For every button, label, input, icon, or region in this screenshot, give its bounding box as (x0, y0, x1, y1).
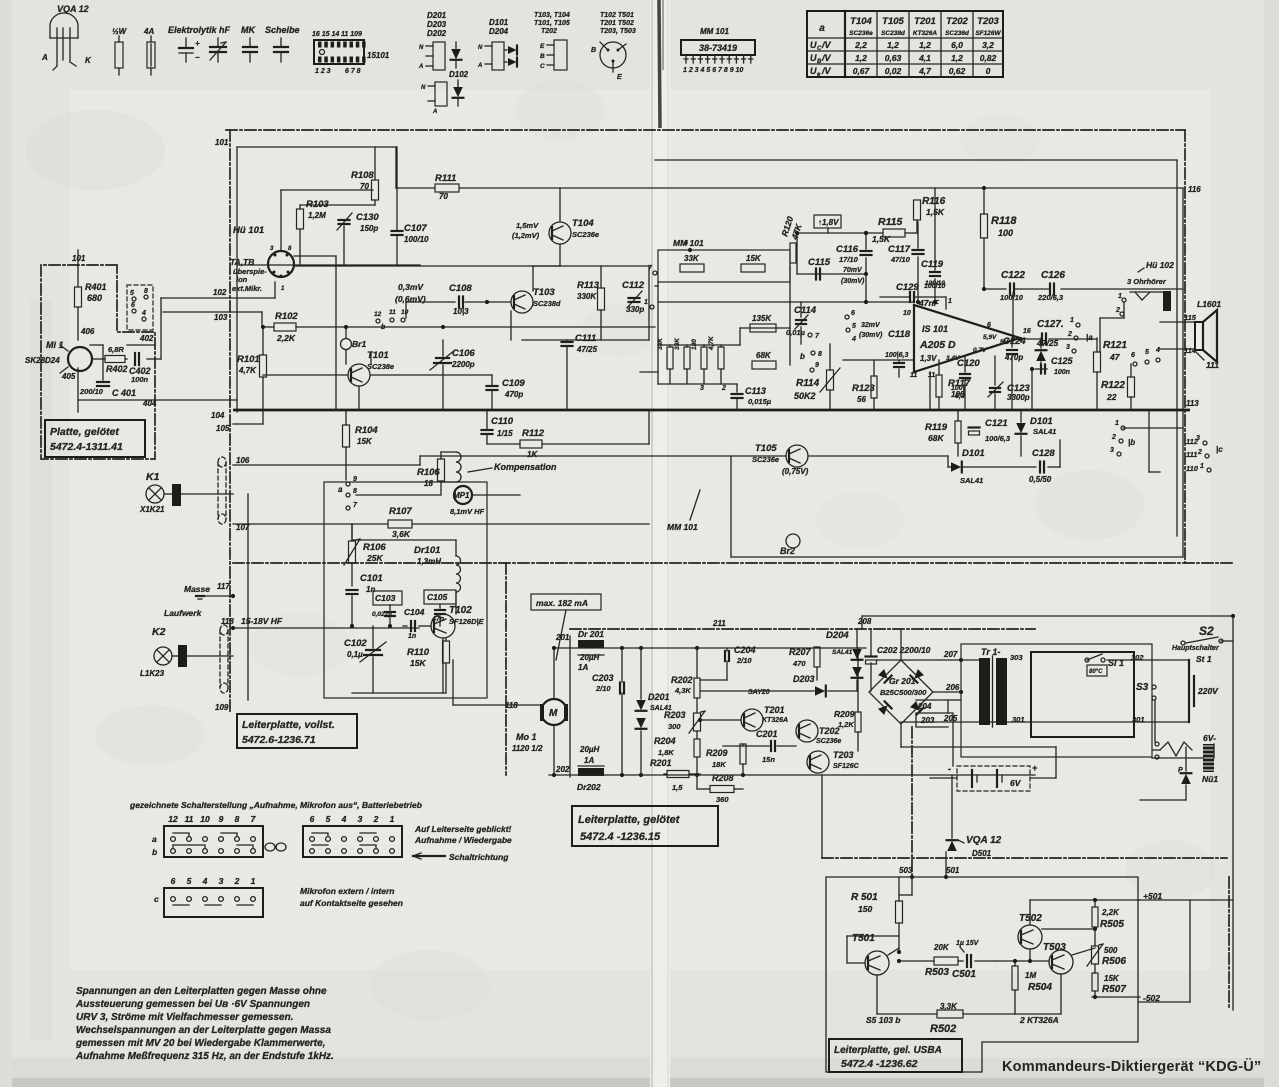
svg-text:Mi 1: Mi 1 (46, 340, 64, 350)
svg-text:R106: R106 (417, 467, 440, 478)
svg-text:15101: 15101 (367, 51, 390, 60)
svg-text:R115: R115 (878, 216, 902, 228)
svg-text:208: 208 (857, 617, 872, 626)
svg-text:9: 9 (219, 814, 224, 824)
svg-text:4,7K: 4,7K (238, 366, 257, 375)
svg-text:Nü1: Nü1 (1202, 774, 1218, 784)
svg-text:3: 3 (1110, 447, 1114, 454)
svg-text:T105: T105 (755, 443, 777, 454)
svg-text:16 15 14: 16 15 14 (312, 31, 339, 38)
svg-text:1120 1/2: 1120 1/2 (512, 744, 543, 753)
svg-text:70: 70 (439, 192, 448, 201)
svg-text:C116: C116 (836, 244, 859, 255)
svg-text:C129: C129 (896, 282, 919, 293)
svg-text:2: 2 (1111, 434, 1116, 441)
svg-text:2,2K: 2,2K (276, 333, 296, 343)
svg-text:C101: C101 (360, 573, 383, 584)
svg-text:38-73419: 38-73419 (699, 43, 737, 53)
svg-text:201: 201 (555, 633, 570, 642)
svg-text:105: 105 (216, 424, 230, 433)
svg-text:6: 6 (1131, 352, 1135, 359)
svg-text:D201: D201 (427, 11, 447, 20)
svg-text:Auf Leiterseite geblickt!: Auf Leiterseite geblickt! (414, 824, 512, 834)
svg-text:18K: 18K (712, 760, 726, 769)
svg-text:22: 22 (1106, 392, 1117, 402)
svg-text:R104: R104 (355, 425, 378, 436)
svg-text:R209: R209 (834, 709, 855, 719)
svg-text:1A: 1A (578, 663, 588, 672)
svg-text:20µH: 20µH (579, 745, 600, 754)
svg-text:15n: 15n (762, 755, 775, 764)
svg-text:0,5/50: 0,5/50 (1029, 475, 1052, 484)
svg-text:|a: |a (1086, 333, 1093, 342)
svg-text:5472.6-1236.71: 5472.6-1236.71 (242, 734, 316, 746)
svg-text:Br2: Br2 (780, 546, 795, 556)
svg-text:50K2: 50K2 (794, 391, 816, 401)
svg-text:T103, T104: T103, T104 (534, 12, 570, 19)
svg-text:100: 100 (951, 390, 965, 399)
svg-text:9: 9 (815, 362, 819, 369)
svg-text:6,0: 6,0 (951, 40, 963, 50)
svg-text:T203, T503: T203, T503 (600, 28, 636, 35)
svg-text:116: 116 (1188, 185, 1201, 194)
svg-text:103: 103 (214, 313, 228, 322)
svg-text:R503: R503 (925, 967, 949, 978)
svg-text:VQA 12: VQA 12 (966, 835, 1002, 846)
svg-text:150p: 150p (360, 224, 378, 233)
svg-text:R116: R116 (922, 196, 946, 207)
svg-text:15K: 15K (1104, 974, 1120, 983)
svg-text:8: 8 (144, 288, 148, 295)
svg-text:32mV: 32mV (861, 322, 881, 329)
svg-text:470: 470 (792, 659, 806, 668)
svg-text:33K: 33K (684, 254, 700, 263)
svg-text:R207: R207 (789, 647, 812, 657)
svg-text:Tr 1-: Tr 1- (981, 647, 1000, 657)
svg-text:−: − (195, 53, 200, 62)
svg-text:8,1mV HF: 8,1mV HF (450, 507, 485, 516)
svg-text:/V: /V (821, 53, 832, 63)
svg-text:Hauptschalter: Hauptschalter (1172, 645, 1220, 652)
svg-text:D101: D101 (962, 448, 985, 459)
svg-text:MK: MK (241, 25, 256, 35)
svg-text:6 7 8: 6 7 8 (345, 68, 361, 75)
svg-text:3: 3 (358, 814, 363, 824)
svg-text:U: U (810, 53, 817, 63)
svg-text:2: 2 (373, 814, 379, 824)
svg-text:6: 6 (684, 240, 688, 247)
svg-text:R107: R107 (389, 506, 412, 517)
svg-text:2,2K: 2,2K (1101, 908, 1120, 917)
svg-text:2200p: 2200p (451, 360, 475, 369)
svg-text:100|6,3: 100|6,3 (885, 352, 908, 359)
svg-text:3: 3 (219, 876, 224, 886)
svg-text:5,9V: 5,9V (983, 334, 997, 341)
svg-text:MM 101: MM 101 (673, 238, 704, 248)
svg-text:R402: R402 (106, 364, 128, 374)
svg-text:1,2K: 1,2K (838, 720, 854, 729)
svg-text:503: 503 (899, 866, 913, 875)
svg-text:C127.: C127. (1037, 319, 1064, 330)
svg-text:T105: T105 (882, 16, 904, 27)
svg-text:C204: C204 (734, 645, 756, 655)
svg-text:Masse: Masse (184, 584, 210, 594)
svg-text:SC236e: SC236e (572, 230, 599, 239)
svg-text:lon: lon (236, 275, 248, 284)
svg-text:115: 115 (1184, 313, 1197, 322)
svg-text:auf Kontaktseite gesehen: auf Kontaktseite gesehen (300, 898, 403, 908)
svg-text:1,8K: 1,8K (658, 748, 674, 757)
svg-text:R118: R118 (991, 215, 1017, 227)
svg-text:0,63: 0,63 (885, 53, 902, 63)
svg-text:Schaltrichtung: Schaltrichtung (449, 852, 509, 862)
svg-text:47/25: 47/25 (576, 345, 598, 354)
svg-text:C105: C105 (427, 592, 448, 602)
svg-text:0,67: 0,67 (853, 66, 871, 76)
svg-text:3,2: 3,2 (982, 40, 994, 50)
svg-text:KT326A: KT326A (762, 717, 788, 724)
svg-text:405: 405 (61, 372, 76, 381)
svg-text:R201: R201 (650, 758, 672, 768)
svg-text:C115: C115 (808, 257, 831, 268)
svg-text:203: 203 (920, 716, 935, 725)
svg-text:SC236e: SC236e (816, 738, 841, 745)
svg-text:Br1: Br1 (352, 339, 366, 349)
svg-text:205: 205 (943, 714, 958, 723)
svg-text:SF126W: SF126W (975, 30, 1001, 37)
svg-text:117: 117 (217, 582, 230, 591)
svg-text:8: 8 (818, 351, 822, 358)
svg-text:R119: R119 (925, 422, 948, 433)
svg-text:12: 12 (374, 311, 382, 318)
svg-text:Dr202: Dr202 (577, 782, 601, 792)
svg-text:1: 1 (1200, 463, 1204, 470)
svg-text:70mV: 70mV (843, 267, 863, 274)
svg-text:70: 70 (360, 182, 369, 191)
svg-text:R504: R504 (1028, 982, 1052, 993)
svg-text:SAY20: SAY20 (748, 689, 770, 696)
svg-text:20K: 20K (933, 943, 950, 952)
svg-text:C106: C106 (452, 348, 475, 359)
svg-text:L1601: L1601 (1197, 299, 1221, 309)
svg-text:202: 202 (555, 765, 570, 774)
svg-text:+: + (1032, 763, 1038, 773)
svg-text:R505: R505 (1100, 919, 1124, 930)
svg-text:104: 104 (211, 411, 225, 420)
svg-text:S3: S3 (1136, 682, 1149, 693)
svg-text:R117: R117 (948, 378, 971, 389)
svg-text:Wechselspannungen an der Le: Wechselspannungen an der Leiterplatte ge… (76, 1025, 331, 1036)
svg-text:2/10: 2/10 (736, 656, 752, 665)
svg-text:80°C: 80°C (1089, 669, 1103, 675)
svg-text:Kompensation: Kompensation (494, 462, 557, 472)
svg-text:K1: K1 (146, 471, 160, 483)
svg-text:T102 T501: T102 T501 (600, 12, 634, 19)
svg-text:3: 3 (1066, 344, 1070, 351)
svg-text:Dr 201: Dr 201 (578, 629, 604, 639)
svg-text:R 501: R 501 (851, 892, 878, 903)
svg-text:5: 5 (852, 323, 856, 330)
svg-text:118: 118 (221, 617, 234, 626)
svg-text:Kommandeurs-Diktiergerät “KD: Kommandeurs-Diktiergerät “KDG-Ü” (1002, 1058, 1261, 1075)
svg-text:4: 4 (141, 310, 146, 317)
svg-text:110: 110 (1186, 464, 1199, 473)
svg-text:R108: R108 (351, 170, 374, 181)
svg-text:Aufnahme / Wiedergabe: Aufnahme / Wiedergabe (414, 835, 512, 845)
svg-text:SK28D24: SK28D24 (25, 356, 60, 365)
svg-text:111: 111 (1206, 360, 1219, 370)
svg-text:15K: 15K (746, 254, 762, 263)
svg-text:S2: S2 (1199, 624, 1214, 638)
svg-text:1,3V: 1,3V (920, 354, 937, 363)
svg-text:4A: 4A (143, 27, 154, 36)
svg-text:R106: R106 (363, 542, 386, 553)
svg-text:C126: C126 (1041, 270, 1065, 281)
svg-text:11: 11 (185, 814, 194, 824)
svg-text:4,1: 4,1 (918, 53, 931, 63)
svg-text:D202: D202 (427, 29, 447, 38)
svg-text:25K: 25K (366, 553, 383, 563)
svg-text:6: 6 (987, 322, 991, 329)
svg-text:Elektrolytik hF: Elektrolytik hF (168, 25, 231, 35)
svg-text:D201: D201 (648, 692, 670, 702)
svg-text:St 1: St 1 (1196, 654, 1212, 664)
svg-text:T203: T203 (833, 750, 854, 760)
svg-text:T203: T203 (977, 16, 999, 27)
svg-text:303: 303 (1010, 653, 1023, 662)
svg-text:1M: 1M (1025, 971, 1036, 980)
svg-text:SAL41: SAL41 (960, 476, 983, 485)
svg-text:C113: C113 (745, 386, 766, 396)
svg-text:4: 4 (341, 814, 347, 824)
svg-text:2: 2 (721, 385, 726, 392)
svg-text:R507: R507 (1102, 984, 1126, 995)
svg-text:D203: D203 (793, 674, 815, 684)
svg-text:Hü 102: Hü 102 (1146, 260, 1174, 270)
svg-text:406: 406 (80, 327, 95, 336)
svg-text:↑1,8V: ↑1,8V (818, 218, 839, 227)
svg-text:Gr 201: Gr 201 (889, 676, 916, 686)
svg-text:1: 1 (251, 876, 256, 886)
svg-text:R506: R506 (1102, 956, 1126, 967)
svg-text:Platte, gelötet: Platte, gelötet (50, 426, 119, 438)
svg-text:3,6K: 3,6K (392, 529, 411, 539)
svg-text:112: 112 (1186, 437, 1199, 446)
svg-text:C 401: C 401 (112, 388, 136, 398)
svg-text:6: 6 (851, 310, 855, 317)
svg-text:470p: 470p (504, 390, 523, 399)
svg-text:URV 3, Ströme mit Vielfachme: URV 3, Ströme mit Vielfachmesser gemesse… (76, 1012, 294, 1023)
svg-text:T103: T103 (533, 287, 555, 298)
svg-text:T202: T202 (541, 28, 557, 35)
svg-text:R204: R204 (654, 736, 676, 746)
svg-text:68K: 68K (928, 433, 944, 443)
svg-text:300: 300 (668, 722, 681, 731)
svg-text:C125: C125 (1051, 356, 1074, 366)
svg-text:|b: |b (1128, 438, 1135, 447)
svg-text:1: 1 (390, 814, 395, 824)
svg-text:T201: T201 (764, 705, 785, 715)
svg-text:2 KT326A: 2 KT326A (1019, 1015, 1059, 1025)
svg-text:5472.4 -1236.62: 5472.4 -1236.62 (841, 1058, 918, 1070)
svg-text:1 2 3: 1 2 3 (315, 68, 331, 75)
svg-text:R121: R121 (1103, 340, 1127, 351)
svg-text:P: P (1178, 767, 1183, 774)
svg-text:C104: C104 (404, 607, 425, 617)
svg-text:15K: 15K (410, 658, 426, 668)
svg-text:Leiterplatte, gel. USBA: Leiterplatte, gel. USBA (834, 1045, 942, 1056)
svg-text:S5 103 b: S5 103 b (866, 1015, 901, 1025)
svg-text:Spannungen an den Leiterplatt: Spannungen an den Leiterplatten gegen Ma… (76, 986, 327, 997)
svg-text:2: 2 (1197, 449, 1202, 456)
svg-text:101: 101 (215, 138, 229, 147)
svg-text:T101: T101 (367, 350, 389, 361)
svg-text:D101: D101 (489, 18, 509, 27)
svg-text:17/10: 17/10 (839, 255, 859, 264)
svg-text:IS 101: IS 101 (922, 324, 948, 334)
svg-text:T101, T105: T101, T105 (534, 20, 570, 27)
svg-text:0,015µ: 0,015µ (748, 397, 772, 406)
svg-text:SF126C: SF126C (833, 763, 860, 770)
svg-text:T201 T502: T201 T502 (600, 20, 634, 27)
svg-text:0,01µ: 0,01µ (786, 328, 806, 337)
svg-text:C130: C130 (356, 212, 379, 223)
svg-text:C111: C111 (575, 333, 596, 344)
svg-text:10: 10 (903, 310, 911, 317)
svg-text:5472.4-1311.41: 5472.4-1311.41 (50, 441, 123, 453)
svg-text:330K: 330K (577, 292, 597, 301)
svg-text:R202: R202 (671, 675, 693, 685)
svg-text:C201: C201 (756, 729, 778, 739)
svg-text:11: 11 (928, 372, 935, 379)
svg-text:/V: /V (821, 66, 832, 76)
svg-text:C112: C112 (622, 280, 645, 291)
svg-text:C108: C108 (449, 283, 472, 294)
svg-text:200/10: 200/10 (79, 387, 104, 396)
svg-text:1A: 1A (584, 756, 594, 765)
svg-text:D204: D204 (489, 27, 509, 36)
svg-text:Aussteuerung gemessen bei U: Aussteuerung gemessen bei Uʙ ·6V Spannun… (75, 999, 310, 1010)
svg-text:6,8R: 6,8R (108, 345, 124, 354)
svg-text:Laufwerk: Laufwerk (164, 608, 203, 618)
svg-text:11 109: 11 109 (341, 31, 362, 38)
svg-text:56: 56 (857, 395, 866, 404)
svg-text:ext.Mikr.: ext.Mikr. (232, 284, 262, 293)
svg-text:1K: 1K (527, 450, 538, 459)
svg-text:N: N (421, 85, 426, 91)
svg-text:C202 2200/10: C202 2200/10 (877, 645, 931, 655)
svg-text:1: 1 (1118, 293, 1122, 300)
svg-text:5: 5 (326, 814, 331, 824)
svg-text:C124: C124 (1003, 336, 1026, 347)
svg-text:207: 207 (943, 650, 958, 659)
svg-text:R113: R113 (577, 280, 600, 291)
svg-text:U: U (810, 40, 817, 50)
svg-text:2: 2 (1067, 331, 1072, 338)
svg-text:1n: 1n (408, 633, 416, 640)
svg-text:100: 100 (998, 228, 1013, 238)
svg-text:SC238d: SC238d (881, 30, 906, 37)
svg-text:Leiterplatte, vollst.: Leiterplatte, vollst. (242, 719, 335, 731)
svg-text:1,5mV: 1,5mV (516, 221, 539, 230)
svg-text:(30mV): (30mV) (841, 278, 865, 285)
svg-text:D204: D204 (826, 630, 849, 641)
svg-text:4,3K: 4,3K (674, 686, 691, 695)
svg-text:102: 102 (213, 288, 227, 297)
svg-text:15-18V HF: 15-18V HF (241, 616, 283, 626)
svg-text:A205 D: A205 D (919, 339, 956, 351)
svg-text:+: + (195, 39, 200, 48)
svg-text:0,02: 0,02 (885, 66, 902, 76)
svg-text:5: 5 (187, 876, 192, 886)
svg-text:K2: K2 (152, 626, 166, 638)
svg-text:2,2: 2,2 (854, 40, 867, 50)
svg-text:204: 204 (917, 702, 932, 711)
svg-text:5472.4 -1236.15: 5472.4 -1236.15 (580, 831, 661, 843)
svg-text:109: 109 (215, 703, 229, 712)
svg-text:SF126D|E: SF126D|E (449, 617, 485, 626)
svg-text:A: A (41, 53, 48, 62)
svg-text:C: C (540, 63, 545, 70)
svg-text:Mo 1: Mo 1 (516, 732, 537, 742)
svg-text:R112: R112 (522, 428, 545, 439)
svg-text:SAL41: SAL41 (1033, 427, 1056, 436)
svg-text:B: B (591, 47, 596, 54)
svg-text:C110: C110 (491, 416, 514, 427)
svg-text:680: 680 (87, 293, 102, 303)
svg-text:3300p: 3300p (1007, 393, 1030, 402)
svg-text:T104: T104 (850, 16, 872, 27)
svg-text:B25C500/300: B25C500/300 (880, 688, 927, 697)
svg-text:N: N (419, 45, 424, 51)
svg-text:U: U (810, 66, 817, 76)
svg-text:C128: C128 (1032, 448, 1055, 459)
svg-text:330p: 330p (626, 305, 644, 314)
svg-text:R110: R110 (407, 647, 430, 658)
svg-text:Aufnahme Meßfrequenz 315 Hz,: Aufnahme Meßfrequenz 315 Hz, an der Ends… (75, 1051, 334, 1062)
svg-text:0,7V: 0,7V (973, 347, 987, 354)
svg-text:1,2M: 1,2M (308, 211, 326, 220)
svg-text:-: - (948, 764, 951, 774)
svg-text:11: 11 (910, 372, 917, 379)
svg-text:E: E (540, 43, 545, 50)
svg-text:1,3mH: 1,3mH (417, 557, 441, 566)
svg-text:1,5K: 1,5K (926, 207, 945, 217)
svg-text:SC238d: SC238d (533, 299, 561, 308)
svg-text:1: 1 (1115, 420, 1119, 427)
svg-text:C107: C107 (404, 223, 427, 234)
svg-text:M: M (549, 708, 558, 719)
svg-text:18: 18 (424, 479, 433, 488)
svg-text:8: 8 (235, 814, 240, 824)
svg-text:T501: T501 (852, 933, 875, 944)
svg-text:E: E (617, 74, 622, 81)
svg-text:C118: C118 (888, 329, 911, 340)
svg-text:Scheibe: Scheibe (265, 25, 300, 35)
svg-text:2: 2 (234, 876, 240, 886)
svg-text:C102: C102 (344, 638, 367, 649)
svg-text:A: A (432, 109, 437, 115)
svg-text:gemessen mit MV 20 bei Wie: gemessen mit MV 20 bei Wiedergabe Klamme… (75, 1038, 325, 1049)
svg-text:1µ 15V: 1µ 15V (956, 940, 980, 947)
svg-text:100/10: 100/10 (404, 235, 429, 244)
svg-text:113: 113 (1186, 399, 1199, 408)
svg-text:1,2: 1,2 (855, 53, 867, 63)
svg-text:C120: C120 (957, 358, 980, 369)
svg-text:R122: R122 (1101, 380, 1125, 391)
svg-text:15K: 15K (357, 437, 373, 446)
svg-text:1,5K: 1,5K (872, 234, 891, 244)
